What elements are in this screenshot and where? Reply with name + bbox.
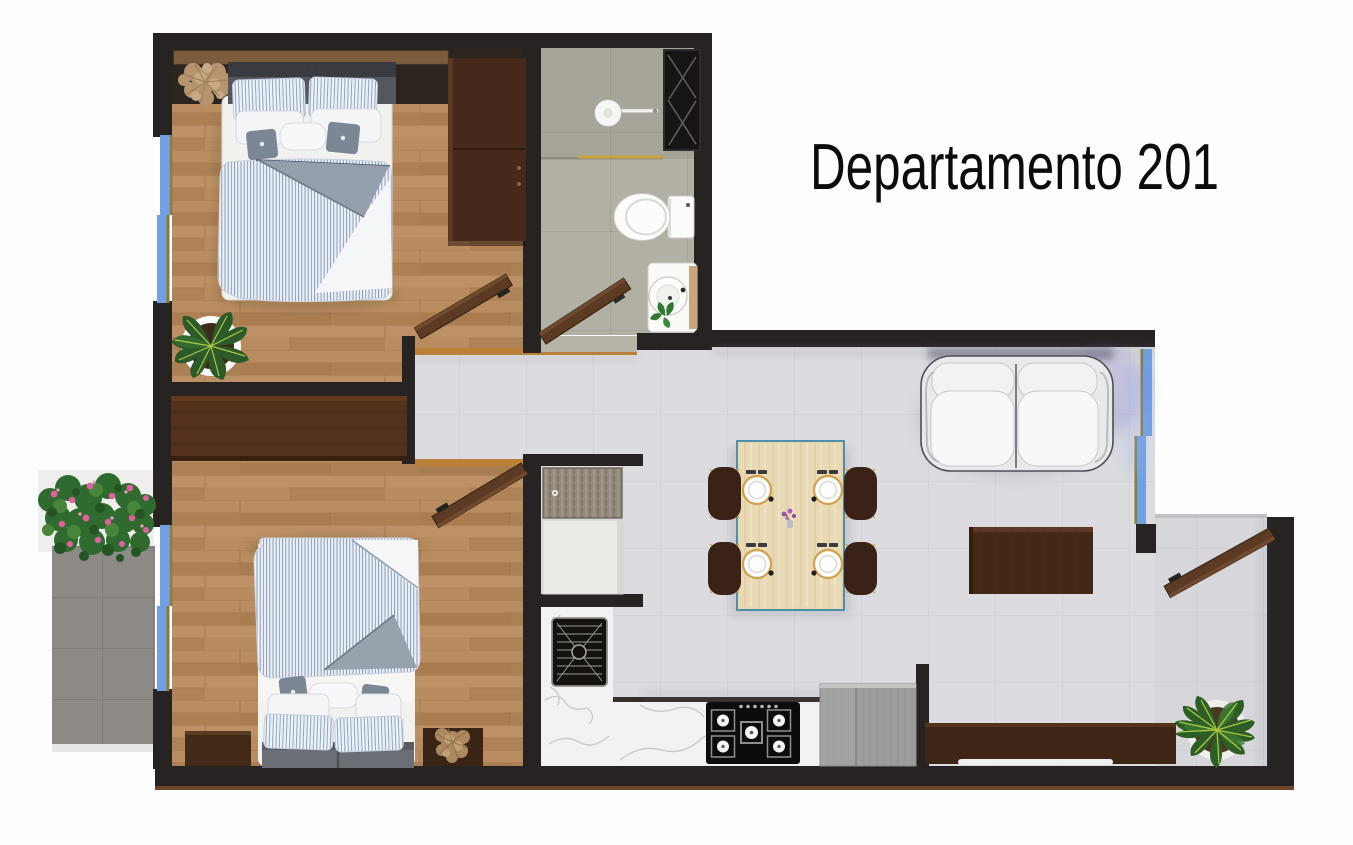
svg-text:Departamento 201: Departamento 201: [810, 130, 1219, 203]
